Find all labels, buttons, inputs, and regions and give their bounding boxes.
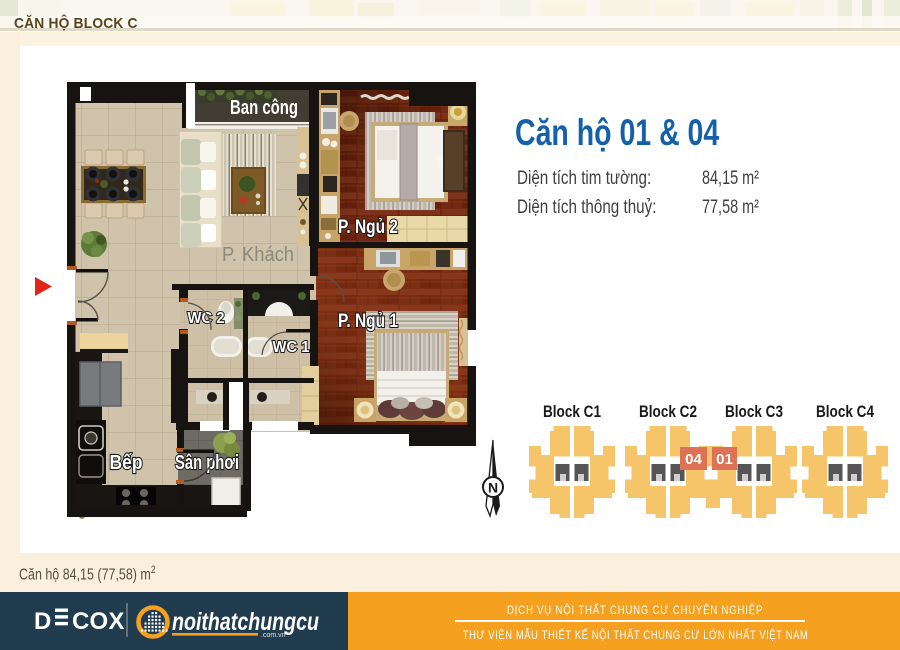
svg-text:04: 04 [685, 451, 702, 468]
svg-text:P. Ngủ 2: P. Ngủ 2 [338, 217, 398, 238]
svg-text:Block C3: Block C3 [725, 402, 783, 421]
svg-text:noithatchungcu: noithatchungcu [172, 608, 319, 636]
svg-text:Block C1: Block C1 [543, 402, 601, 421]
svg-text:P. Ngủ 1: P. Ngủ 1 [338, 311, 398, 332]
svg-text:COX: COX [72, 608, 125, 635]
svg-text:.com.vn: .com.vn [261, 632, 286, 639]
svg-text:Block C2: Block C2 [639, 402, 697, 421]
svg-text:N: N [488, 480, 498, 496]
svg-text:Block C4: Block C4 [816, 402, 874, 421]
svg-text:P. Khách: P. Khách [222, 244, 294, 266]
svg-text:Ban công: Ban công [230, 97, 298, 119]
svg-text:WC 1: WC 1 [273, 339, 310, 356]
svg-text:D: D [34, 608, 51, 635]
svg-text:01: 01 [716, 451, 733, 468]
svg-text:Bếp: Bếp [110, 452, 143, 474]
